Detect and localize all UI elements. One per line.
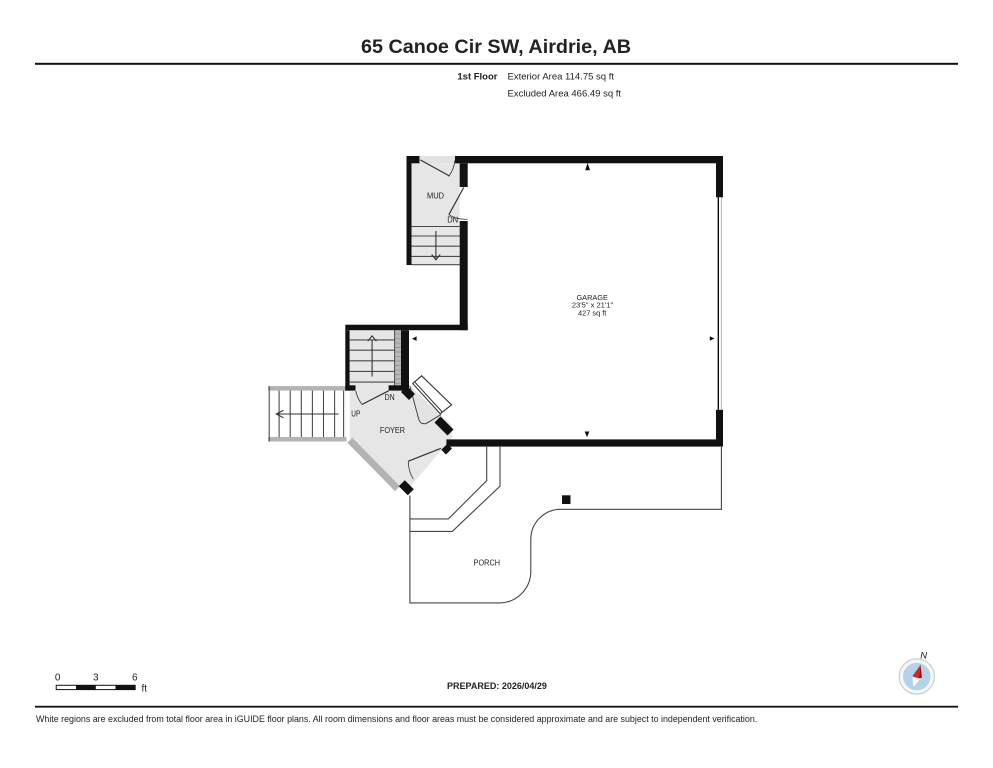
- svg-text:DN: DN: [385, 392, 395, 402]
- svg-text:MUD: MUD: [427, 191, 444, 201]
- svg-text:FOYER: FOYER: [380, 425, 405, 435]
- svg-text:65 Canoe Cir SW, Airdrie, AB: 65 Canoe Cir SW, Airdrie, AB: [361, 36, 631, 58]
- svg-text:3: 3: [93, 673, 99, 684]
- svg-text:PORCH: PORCH: [474, 558, 501, 568]
- svg-text:N: N: [920, 650, 927, 661]
- svg-text:Excluded Area 466.49 sq ft: Excluded Area 466.49 sq ft: [508, 89, 622, 100]
- svg-text:PREPARED: 2026/04/29: PREPARED: 2026/04/29: [447, 681, 547, 691]
- svg-text:UP: UP: [351, 408, 360, 418]
- svg-text:0: 0: [55, 673, 61, 684]
- svg-text:1st Floor: 1st Floor: [457, 72, 497, 83]
- svg-text:DN: DN: [447, 215, 458, 225]
- svg-text:ft: ft: [142, 684, 148, 695]
- svg-text:6: 6: [132, 673, 138, 684]
- svg-text:427 sq ft: 427 sq ft: [578, 309, 606, 318]
- svg-text:White regions are excluded fro: White regions are excluded from total fl…: [36, 714, 757, 724]
- svg-text:Exterior Area 114.75 sq ft: Exterior Area 114.75 sq ft: [508, 72, 615, 83]
